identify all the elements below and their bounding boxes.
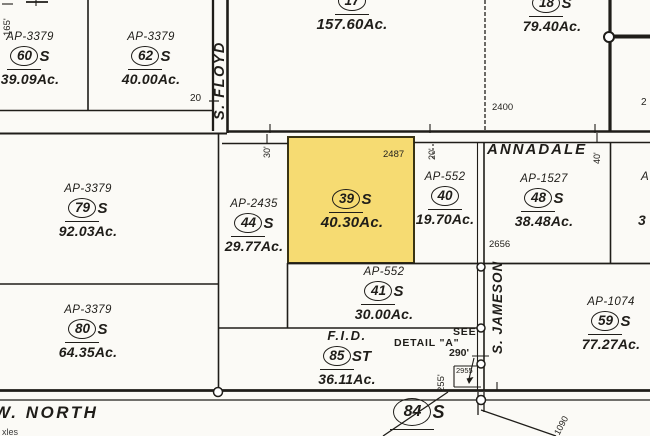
parcel-apn: AP-3379 [33, 183, 143, 195]
parcel-suffix: S [263, 215, 273, 232]
street-label-w-north: W. NORTH [0, 403, 98, 423]
see-detail-note-line2: DETAIL "A" [394, 337, 459, 349]
parcel-acreage: 38.48Ac. [489, 213, 599, 229]
parcel-suffix: S [361, 191, 371, 208]
parcel-acreage: 92.03Ac. [33, 223, 143, 239]
parcel-suffix: S [393, 283, 403, 300]
parcel-acreage: 30.00Ac. [329, 306, 439, 322]
parcel-79[interactable]: AP-3379 79S 92.03Ac. [33, 183, 143, 239]
parcel-acreage: 36.11Ac. [292, 371, 402, 387]
parcel-number: 85ST [292, 346, 402, 366]
ref-number-2400: 2400 [492, 102, 513, 113]
partial-text-bottom-left: xles [2, 427, 18, 436]
parcel-number-circle: 85 [323, 346, 351, 366]
parcel-suffix: ST [352, 348, 371, 365]
parcel-suffix: S [160, 48, 170, 65]
parcel-number-circle: 39 [332, 189, 360, 209]
parcel-apn: AP-552 [329, 266, 439, 278]
parcel-40[interactable]: AP-552 40 19.70Ac. [390, 171, 500, 227]
parcel-44[interactable]: AP-2435 44S 29.77Ac. [199, 198, 309, 254]
parcel-apn: AP-552 [390, 171, 500, 183]
dimension-30ft: 30' [262, 146, 272, 158]
parcel-number-circle: 44 [234, 213, 262, 233]
parcel-acreage: 19.70Ac. [390, 211, 500, 227]
parcel-acreage: 79.40Ac. [497, 18, 607, 34]
dimension-255ft: 255' [436, 374, 447, 392]
parcel-number: 60S [0, 46, 85, 66]
parcel-suffix: S [553, 190, 563, 207]
partial-apn-right-edge: A [641, 171, 649, 183]
parcel-suffix: S [97, 200, 107, 217]
parcel-acreage: 29.77Ac. [199, 238, 309, 254]
parcel-17[interactable]: 17 157.60Ac. [297, 0, 407, 33]
parcel-acreage: 157.60Ac. [297, 16, 407, 33]
parcel-number: 59S [556, 311, 650, 331]
parcel-acreage: 40.00Ac. [96, 71, 206, 87]
parcel-number-circle: 18 [532, 0, 560, 13]
parcel-number-circle: 84 [393, 398, 431, 426]
parcel-number-circle: 17 [338, 0, 366, 11]
partial-acreage-right-edge: 3 [638, 212, 646, 228]
parcel-apn: AP-1527 [489, 173, 599, 185]
parcel-suffix: S [620, 313, 630, 330]
parcel-number: 80S [33, 319, 143, 339]
parcel-acreage: 77.27Ac. [556, 336, 650, 352]
parcel-number: 84S [374, 398, 464, 426]
parcel-80[interactable]: AP-3379 80S 64.35Ac. [33, 304, 143, 360]
parcel-number-circle: 79 [68, 198, 96, 218]
dimension-40ft: 40' [592, 152, 602, 164]
dimension-20ft-annadale: 20' [427, 148, 437, 160]
parcel-apn: AP-3379 [33, 304, 143, 316]
parcel-number: 48S [489, 188, 599, 208]
parcel-map[interactable]: S. FLOYD ANNADALE S. JAMESON W. NORTH AP… [0, 0, 650, 436]
parcel-85-fid[interactable]: F.I.D. 85ST 36.11Ac. [292, 328, 402, 387]
parcel-48[interactable]: AP-1527 48S 38.48Ac. [489, 173, 599, 229]
parcel-apn: AP-3379 [96, 31, 206, 43]
parcel-number-circle: 59 [591, 311, 619, 331]
parcel-suffix: S [39, 48, 49, 65]
parcel-number-circle: 40 [431, 186, 459, 206]
parcel-suffix: S [432, 402, 444, 423]
street-label-s-floyd: S. FLOYD [212, 41, 228, 120]
dimension-1090: 1090 [552, 414, 570, 436]
parcel-59[interactable]: AP-1074 59S 77.27Ac. [556, 296, 650, 352]
parcel-number: 17 [297, 0, 407, 11]
street-label-annadale: ANNADALE [487, 141, 587, 158]
parcel-number: 44S [199, 213, 309, 233]
parcel-acreage: 39.09Ac. [0, 71, 85, 87]
street-label-s-jameson: S. JAMESON [490, 261, 505, 354]
parcel-apn: AP-1074 [556, 296, 650, 308]
parcel-84[interactable]: 84S [374, 395, 464, 431]
parcel-number: 79S [33, 198, 143, 218]
parcel-apn: F.I.D. [292, 328, 402, 343]
partial-text-top-right: 2 [641, 97, 647, 108]
ref-number-2955: 2955 [456, 366, 473, 375]
parcel-number: 40 [390, 186, 500, 206]
parcel-suffix: S [97, 321, 107, 338]
parcel-number-circle: 62 [131, 46, 159, 66]
parcel-number-circle: 60 [10, 46, 38, 66]
parcel-number-circle: 41 [364, 281, 392, 301]
parcel-number: 18S [497, 0, 607, 13]
parcel-41[interactable]: AP-552 41S 30.00Ac. [329, 266, 439, 322]
parcel-apn: AP-2435 [199, 198, 309, 210]
parcel-suffix: S [561, 0, 571, 12]
parcel-number-circle: 80 [68, 319, 96, 339]
parcel-62[interactable]: AP-3379 62S 40.00Ac. [96, 31, 206, 87]
parcel-number: 41S [329, 281, 439, 301]
parcel-number-circle: 48 [524, 188, 552, 208]
dimension-165ft: 165' [2, 18, 13, 36]
ref-number-2656: 2656 [489, 239, 510, 250]
parcel-number: 62S [96, 46, 206, 66]
parcel-60[interactable]: AP-3379 60S 39.09Ac. [0, 31, 85, 87]
dimension-20ft-floyd: 20 [190, 93, 201, 104]
parcel-acreage: 64.35Ac. [33, 344, 143, 360]
parcel-18[interactable]: 18S 79.40Ac. [497, 0, 607, 34]
ref-number-2487: 2487 [383, 149, 404, 160]
